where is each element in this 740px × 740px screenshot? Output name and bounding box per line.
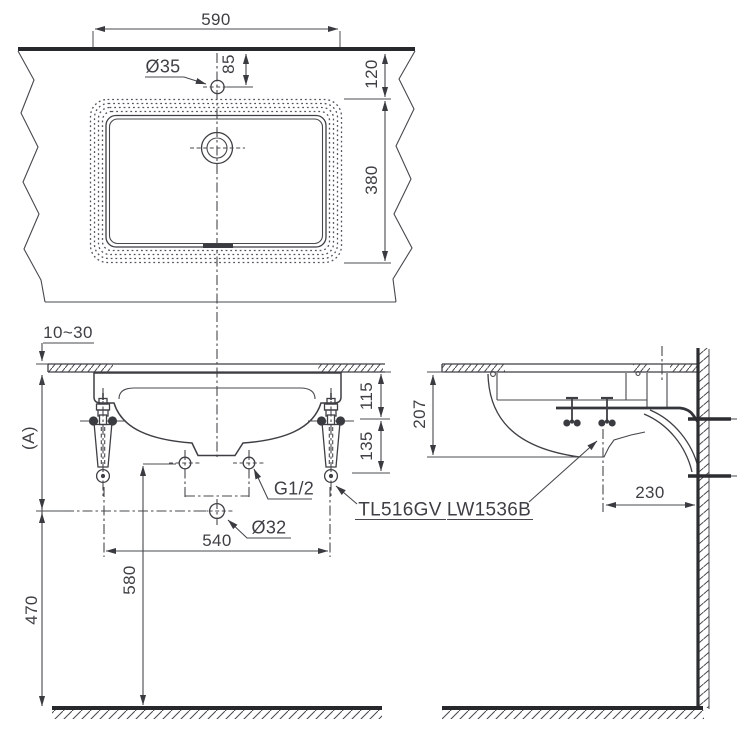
label-faucet-hole: Ø35 (145, 56, 206, 84)
rail-bolt-rear (598, 398, 615, 427)
basin-model-label: LW1536B (447, 500, 531, 521)
hanger-bracket-left (80, 388, 126, 498)
side-counter-hatch-1 (442, 365, 505, 372)
dim-A-label: (A) (19, 426, 38, 450)
overflow-slot (203, 244, 233, 249)
dim-115-135: 115 135 (352, 374, 390, 473)
rail-bolt-front (563, 398, 580, 427)
dim-470-label: 470 (22, 595, 41, 625)
front-drain (202, 499, 233, 525)
dim-85-label: 85 (219, 54, 238, 74)
dim-590-label: 590 (201, 10, 231, 29)
counter-hatch-left (48, 365, 113, 372)
dim-230: 230 (603, 429, 695, 512)
dim-10-30-label: 10~30 (43, 323, 93, 342)
label-basin-model: LW1536B (447, 441, 597, 521)
faucet-hole-label: Ø35 (146, 56, 181, 76)
dim-230-label: 230 (635, 483, 665, 502)
counter-hatch-right (318, 365, 383, 372)
basin-rim-outer (106, 116, 326, 248)
label-faucet-model: TL516GV (336, 486, 446, 521)
plan-view: 590 Ø35 85 120 380 (18, 10, 415, 458)
side-view: 207 230 LW1536B (410, 346, 740, 719)
plan-break-right (393, 51, 415, 302)
side-counter-hatch-2 (633, 365, 650, 372)
wall (698, 348, 709, 709)
dim-580: 580 (120, 464, 176, 705)
dim-120-label: 120 (362, 59, 381, 89)
supply-thread-label: G1/2 (274, 478, 314, 498)
installation-drawing: 590 Ø35 85 120 380 (0, 0, 740, 740)
dim-580-label: 580 (120, 565, 139, 595)
faucet-model-label: TL516GV (358, 500, 441, 521)
drawing-canvas: 590 Ø35 85 120 380 (0, 0, 740, 740)
drain-hole-label: Ø32 (252, 517, 287, 537)
plan-break-left (18, 51, 45, 302)
label-supply-thread: G1/2 (254, 469, 314, 499)
side-counter-hatch-3 (670, 365, 697, 372)
dim-counter-thickness: 10~30 (42, 323, 94, 386)
dim-380-label: 380 (362, 165, 381, 195)
label-drain-hole: Ø32 (228, 517, 291, 538)
dim-135-label: 135 (357, 431, 376, 461)
front-view: 10~30 (A) 470 115 135 G1/2 (19, 323, 446, 719)
floor-hatch-front (52, 710, 382, 719)
dim-540-label: 540 (202, 531, 232, 550)
dim-590: 590 (93, 10, 340, 47)
hanger-bracket-right (308, 388, 354, 498)
dim-380: 380 (344, 101, 391, 263)
dim-120: 120 (344, 54, 391, 99)
dim-85: 85 (219, 54, 253, 87)
supply-holes (169, 450, 265, 498)
basin-stipple-band (91, 100, 342, 263)
wall-anchors (688, 419, 740, 476)
dim-115-label: 115 (357, 382, 376, 410)
dim-207-label: 207 (410, 399, 429, 429)
floor-hatch-side (442, 710, 704, 719)
